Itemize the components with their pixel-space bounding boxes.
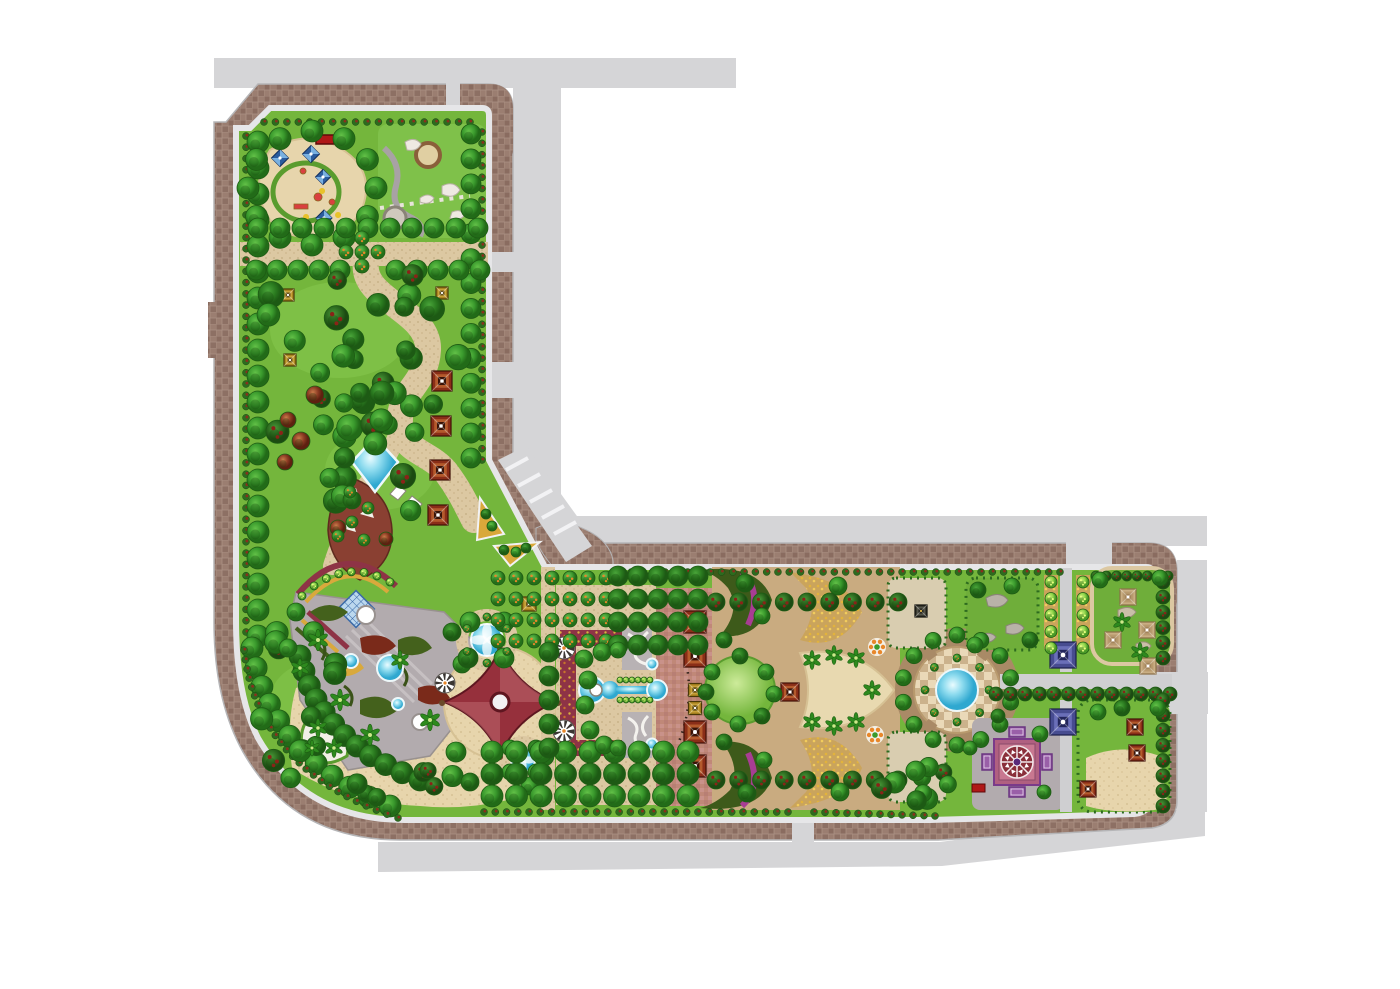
hedge-east-arm-bottom-tree (785, 809, 792, 816)
central-accent-trees-tree (831, 783, 849, 801)
hedge-east-arm-bottom2-tree (932, 813, 939, 820)
hedge-east-arm-bottom-tree (559, 809, 566, 816)
bl-lawn-grove-2-tree (442, 765, 463, 786)
parterre-inner-trees-tree (576, 696, 594, 714)
hedge-east-arm-bottom2-tree (877, 811, 884, 818)
bottom-grove-row2-tree (506, 763, 528, 785)
plaza-pond-small-2 (392, 698, 404, 710)
channel-shrub-row-top-tree (623, 677, 629, 683)
tree-column-left-tree (247, 573, 269, 595)
rotary-flower-shrubs-tree (976, 709, 984, 717)
orchard-grid-tree (563, 571, 577, 585)
hedge-left-tower-tree (243, 358, 250, 365)
park-plan-svg (0, 0, 1400, 989)
orchard-grid-tree (545, 592, 559, 606)
central-tree-row-top (707, 593, 907, 611)
hedge-east-arm-bottom2-tree (855, 810, 862, 817)
hedge-east-arm-bottom-tree (526, 809, 533, 816)
tower-lawn-grove-tree (390, 463, 415, 488)
hedge-east-arm-top-tree (910, 569, 917, 576)
plaza-edge-trees-tree (443, 623, 461, 641)
hedge-east-arm-top-tree (831, 569, 838, 576)
parterre-flank-trees-tree (539, 738, 559, 758)
hedge-east-arm-top-tree (853, 569, 860, 576)
bl-lawn-grove-tree (281, 768, 301, 788)
hedge-top-tower-tree (409, 119, 416, 126)
arc-hedge-bl-tree (373, 807, 380, 814)
tree-column-left-tree (247, 547, 269, 569)
hedge-east-arm-top-tree (842, 569, 849, 576)
olive-bushes-tree (370, 381, 394, 405)
row-below-playzones-tree (380, 218, 400, 238)
hedge-east-arm-top-tree (729, 569, 736, 576)
upper-pond-flower-shrubs-tree (463, 625, 471, 633)
orchard-grid-tree (527, 613, 541, 627)
tower-lawn-grove-tree (370, 409, 393, 432)
hedge-east-arm-bottom-tree (571, 809, 578, 816)
arc-hedge-bl-tree (272, 732, 279, 739)
gold-pavilions-gold (284, 354, 296, 366)
tower-lawn-grove-tree (311, 363, 330, 382)
hedge-left-tower-tree (243, 516, 250, 523)
arc-hedge-bl-tree (335, 788, 342, 795)
red-leaf-trees-tree (306, 386, 324, 404)
tree-column-right-tree (461, 398, 481, 418)
channel-shrub-row-top-tree (617, 677, 623, 683)
tower-lawn-grove-tree (395, 297, 414, 316)
red-leaf-trees-tree (280, 412, 296, 428)
tulip-flower-trees-tree (362, 502, 374, 514)
parterre-flank-trees-tree (539, 714, 559, 734)
oval-ring-trees-tree (698, 684, 714, 700)
flower-diamond-junction-tree (355, 245, 369, 259)
plaza-edge-trees-tree (279, 639, 297, 657)
orchard-grid-tree (491, 571, 505, 585)
right-garden-top-berries-tree (1142, 571, 1152, 581)
mandala-surround-trees-tree (963, 741, 977, 755)
hedge-top-tower-tree (272, 119, 279, 126)
row-below-playzones-tree (424, 218, 444, 238)
hedge-east-arm-top-tree (820, 569, 827, 576)
hedge-right-tower-tree (479, 321, 486, 328)
rotary-tree-ring-tree (949, 737, 965, 753)
right-edge-berries-top-tree (1156, 590, 1170, 604)
hedge-left-tower-tree (243, 414, 250, 421)
red-pavilions-tower-red (430, 460, 450, 480)
row-below-crosspath-l-tree (309, 260, 329, 280)
hedge-east-arm-bottom-tree (627, 809, 634, 816)
tower-lawn-grove-tree (332, 344, 355, 367)
bottom-grove-row3-tree (604, 785, 626, 807)
dark-tree-grid-tree (628, 612, 648, 632)
tree-column-left-tree (247, 417, 269, 439)
arc-hedge-bl-tree (326, 783, 333, 790)
tower-lawn-grove-tree (335, 394, 353, 412)
br-sand-blob (1086, 749, 1168, 811)
hedge-east-arm-top-tree (1023, 569, 1030, 576)
hedge-east-arm-bottom-tree (503, 809, 510, 816)
oval-ring-trees-tree (754, 708, 770, 724)
parterre-flank-trees-tree (539, 642, 559, 662)
rotary-tree-ring-tree (992, 648, 1008, 664)
tan-tent-pavilions-tan (1139, 622, 1155, 638)
lollipop-strip-a-tree (1045, 626, 1057, 638)
row-below-playzones-tree (468, 218, 488, 238)
channel-shrub-row-bot-tree (629, 697, 635, 703)
central-tree-row-bottom-tree (753, 771, 771, 789)
bottom-grove-row3-tree (506, 785, 528, 807)
tower-lawn-grove-tree (351, 383, 370, 402)
parterre-inner-trees-tree (610, 740, 626, 756)
central-tree-row-bottom-tree (798, 771, 816, 789)
orchard-grid-tree (545, 613, 559, 627)
east-bottom-grove-tree (907, 791, 926, 810)
arc-hedge-bl-tree (244, 666, 251, 673)
right-edge-berries-bottom-tree (1156, 738, 1170, 752)
flower-diamond-junction-tree (339, 245, 353, 259)
orchard-grid-tree (581, 571, 595, 585)
lollipop-strip-b-tree (1077, 609, 1089, 621)
hedge-right-tower-tree (479, 343, 486, 350)
hedge-left-tower-tree (243, 279, 250, 286)
ornate-pond-top (647, 659, 658, 670)
mandala-surround-trees-tree (1032, 726, 1048, 742)
central-tree-row-top-tree (707, 593, 725, 611)
arc-hedge-bl-tree (251, 692, 258, 699)
upper-pond-flower-shrubs-tree (503, 625, 511, 633)
flower-diamond-junction-tree (355, 231, 369, 245)
lollipop-strip-b-tree (1077, 642, 1089, 654)
flower-diamond-junction-tree (355, 259, 369, 273)
orchard-grid-tree (509, 571, 523, 585)
orchard-grid-tree (527, 571, 541, 585)
rotary-tree-ring-tree (925, 632, 941, 648)
hedge-east-arm-bottom2-tree (899, 811, 906, 818)
lollipop-strip-a-tree (1045, 593, 1057, 605)
channel-shrub-row-bot-tree (647, 697, 653, 703)
tree-column-right-tree (461, 174, 481, 194)
rotary-flower-shrubs-tree (976, 663, 984, 671)
corner-triangle-trees-tree (521, 543, 531, 553)
hedge-left-tower-tree (243, 538, 250, 545)
central-accent-trees-tree (738, 784, 756, 802)
hedge-east-arm-top-tree (718, 569, 725, 576)
median-flower-trees-tree (1047, 687, 1061, 701)
flower-view-pavilion (781, 683, 799, 701)
right-edge-berries-top-tree (1156, 636, 1170, 650)
tower-lawn-grove-tree (367, 293, 390, 316)
hedge-east-arm-bottom-tree (762, 809, 769, 816)
br-garden-trees-tree (1150, 700, 1166, 716)
fan-dot-trees-tree (386, 578, 394, 586)
tree-column-right-tree (461, 448, 481, 468)
tr-quadrant-trees-tree (970, 582, 986, 598)
hedge-east-arm-bottom-tree (773, 809, 780, 816)
right-edge-berries-top-tree (1156, 621, 1170, 635)
fan-dot-trees-tree (310, 582, 318, 590)
br-garden-trees-tree (1114, 700, 1130, 716)
bottom-grove-row1-tree (481, 741, 503, 763)
entrance-tower-east-2 (486, 362, 560, 398)
east-bottom-grove-tree (906, 761, 926, 781)
hedge-east-arm-bottom-tree (683, 809, 690, 816)
dark-tree-grid-tree (608, 612, 628, 632)
dark-tree-grid-tree (628, 589, 648, 609)
corner-triangle-trees-tree (487, 521, 497, 531)
bottom-grove-row3-tree (579, 785, 601, 807)
channel-shrub-row-top-tree (647, 677, 653, 683)
hedge-east-arm-bottom-tree (582, 809, 589, 816)
right-edge-berries-bottom-tree (1156, 799, 1170, 813)
arc-hedge-bl-tree (242, 656, 249, 663)
hedge-left-tower-tree (243, 437, 250, 444)
lollipop-strip-a-tree (1045, 642, 1057, 654)
bottom-grove-row2-tree (530, 763, 552, 785)
br-red-pavilions-red (1129, 745, 1145, 761)
tree-column-right-tree (461, 323, 481, 343)
arc-hedge-bl-tree (241, 647, 248, 654)
hedge-east-arm-bottom2-tree (888, 811, 895, 818)
hedge-east-arm-top-tree (978, 569, 985, 576)
row-below-crosspath-r (386, 260, 490, 280)
arc-hedge-bl-tree (246, 675, 253, 682)
fan-dot-trees-tree (335, 570, 343, 578)
median-flower-trees-tree (1033, 687, 1047, 701)
row-below-crosspath-r-tree (470, 260, 490, 280)
orchard-grid-tree (491, 613, 505, 627)
parterre-inner-trees-tree (581, 721, 599, 739)
orchard-grid-tree (509, 592, 523, 606)
black-pavilions-black (915, 605, 927, 617)
playground-tree-ring-tree (246, 149, 268, 171)
tree-column-right-tree (461, 373, 481, 393)
br-red-pavilions-red (1127, 719, 1143, 735)
tower-lawn-grove-tree (324, 306, 349, 331)
row-below-playzones-tree (248, 218, 268, 238)
hedge-east-arm-bottom-tree (649, 809, 656, 816)
hedge-top-tower-tree (398, 119, 405, 126)
dark-tree-grid-tree (688, 612, 708, 632)
bottom-grove-row1-tree (506, 741, 528, 763)
hedge-right-tower-tree (479, 445, 486, 452)
parterre-flank-trees (539, 642, 559, 758)
rotary-flower-shrubs-tree (921, 686, 929, 694)
channel-shrub-row-top-tree (635, 677, 641, 683)
hedge-left-tower-tree (243, 617, 250, 624)
upper-pond-flower-shrubs-tree (503, 648, 511, 656)
hedge-top-tower-tree (444, 119, 451, 126)
bottom-grove-row2-tree (653, 763, 675, 785)
red-leaf-trees-tree (277, 454, 293, 470)
hedge-east-arm-top-tree (774, 569, 781, 576)
tower-lawn-grove-tree (446, 344, 471, 369)
orchard-grid-tree (581, 613, 595, 627)
dark-tree-grid-tree (648, 589, 668, 609)
bl-lawn-grove-tree (323, 662, 346, 685)
bottom-grove-row3-tree (677, 785, 699, 807)
rotary-tree-ring-tree (1003, 670, 1019, 686)
tree-column-left-tree (247, 339, 269, 361)
rotary-flower-shrubs-tree (953, 718, 961, 726)
hedge-east-arm-bottom-tree (706, 809, 713, 816)
plaza-edge-trees-tree (287, 603, 305, 621)
hedge-east-arm-top-tree (1057, 569, 1064, 576)
entrance-east-arm-top (1066, 538, 1112, 568)
bottom-grove-row3-tree (628, 785, 650, 807)
rotary-pond (936, 669, 978, 711)
corner-triangle-trees-tree (511, 547, 521, 557)
br-garden-trees-tree (1090, 704, 1106, 720)
gold-pavilions-gold (689, 702, 702, 715)
dark-tree-grid-tree (688, 566, 708, 586)
central-tree-row-top-tree (730, 593, 748, 611)
canopy-surround-trees-tree (461, 773, 479, 791)
median-flower-trees-tree (1105, 687, 1119, 701)
hedge-left-tower-tree (243, 335, 250, 342)
tree-column-right-tree (461, 124, 481, 144)
dark-tree-grid-tree (688, 635, 708, 655)
upper-pond-flower-shrubs-tree (463, 648, 471, 656)
hedge-right-tower-tree (479, 389, 486, 396)
parterre-inner-trees-tree (593, 643, 611, 661)
lollipop-strip-b-tree (1077, 576, 1089, 588)
playground-tree-ring-tree (356, 149, 378, 171)
tan-tent-pavilions-tan (1120, 589, 1136, 605)
east-bottom-grove-tree (939, 776, 956, 793)
tan-tent-pavilions-tan (1140, 658, 1156, 674)
fan-dot-trees-tree (347, 568, 355, 576)
playground-tree-ring-tree (237, 177, 259, 199)
hedge-east-arm-top-tree (786, 569, 793, 576)
right-garden-trees-tree (1092, 572, 1108, 588)
hedge-east-arm-bottom2-tree (833, 809, 840, 816)
red-pavilions-axis-red (684, 721, 706, 743)
tower-lawn-grove-tree (320, 468, 339, 487)
tower-lawn-grove-tree (397, 341, 416, 360)
arc-hedge-bl-tree (344, 793, 351, 800)
parterre-flank-trees-tree (539, 690, 559, 710)
rotary-flower-shrubs-tree (930, 709, 938, 717)
right-edge-berries-bottom-tree (1156, 754, 1170, 768)
corner-triangle-trees-tree (499, 545, 509, 555)
oval-ring-trees-tree (730, 716, 746, 732)
dark-tree-grid-tree (648, 566, 668, 586)
tree-column-left-tree (247, 495, 269, 517)
tulip-flower-trees-tree (332, 530, 344, 542)
hedge-east-arm-top-tree (763, 569, 770, 576)
hedge-top-tower-tree (283, 119, 290, 126)
compass-circle-plaza (435, 673, 455, 693)
rotary-tree-ring-tree (895, 670, 911, 686)
rotary-tree-ring-tree (895, 694, 911, 710)
parterre-inner-trees-tree (575, 650, 593, 668)
fan-dot-trees-tree (322, 575, 330, 583)
hedge-left-tower-tree (243, 200, 250, 207)
tr-quadrant-trees-tree (1004, 578, 1020, 594)
arc-hedge-bl-tree (363, 802, 370, 809)
bl-lawn-grove-2-tree (420, 763, 436, 779)
dark-tree-grid-tree (668, 566, 688, 586)
bl-lawn-grove-tree (251, 708, 273, 730)
east-bottom-grove-tree (871, 778, 892, 799)
arc-hedge-bl-tree (353, 798, 360, 805)
dark-tree-grid-tree (608, 566, 628, 586)
orchard-grid-tree (563, 634, 577, 648)
hedge-east-arm-bottom-tree (481, 809, 488, 816)
arc-hedge-bl-tree (277, 739, 284, 746)
hedge-top-tower-tree (352, 119, 359, 126)
orchard-grid-tree (527, 634, 541, 648)
hedge-east-arm-bottom2-tree (844, 810, 851, 817)
hedge-east-arm-bottom-tree (751, 809, 758, 816)
fountain-plaza-1 (357, 606, 375, 624)
hedge-left-tower-tree (243, 257, 250, 264)
right-garden-top-berries-tree (1132, 571, 1142, 581)
tr-quadrant-trees-tree (1022, 632, 1038, 648)
hedge-right-tower-tree (479, 242, 486, 249)
hedge-east-arm-top-tree (921, 569, 928, 576)
hedge-east-arm-bottom-tree (593, 809, 600, 816)
upper-pond-flower-shrubs-tree (483, 613, 491, 621)
dark-tree-grid-tree (628, 566, 648, 586)
canopy-surround-trees-tree (446, 742, 466, 762)
hedge-right-tower-tree (479, 196, 486, 203)
dark-tree-grid-tree (688, 589, 708, 609)
hedge-left-tower-tree (243, 459, 250, 466)
hedge-top-tower-tree (295, 119, 302, 126)
tree-column-right-tree (461, 199, 481, 219)
right-edge-berries-bottom-tree (1156, 769, 1170, 783)
oval-ring-trees-tree (732, 648, 748, 664)
hedge-right-tower-tree (479, 366, 486, 373)
entrance-tower-east-1 (486, 252, 560, 272)
bottom-grove-row1-tree (677, 741, 699, 763)
rotary-flower-shrubs-tree (930, 663, 938, 671)
hedge-east-arm-top-tree (899, 569, 906, 576)
hedge-top-tower-tree (364, 119, 371, 126)
central-tree-row-top-tree (798, 593, 816, 611)
lollipop-strip-a-tree (1045, 609, 1057, 621)
arc-hedge-bl-tree (254, 701, 261, 708)
hedge-east-arm-top-tree (989, 569, 996, 576)
channel-shrub-row-bot-tree (641, 697, 647, 703)
arc-hedge-bl-tree (395, 815, 402, 822)
tree-column-right-tree (461, 298, 481, 318)
hedge-east-arm-bottom-tree (661, 809, 668, 816)
right-garden-top-berries-tree (1122, 571, 1132, 581)
bl-lawn-grove-2-tree (347, 774, 367, 794)
parterre-flank-trees-tree (539, 666, 559, 686)
playground-tree-ring-tree (301, 120, 323, 142)
upper-pond-flower-shrubs-tree (483, 659, 491, 667)
tower-lawn-grove-tree (257, 303, 280, 326)
arc-hedge-bl-tree (248, 684, 255, 691)
tulip-flower-trees-tree (358, 534, 370, 546)
tower-lawn-grove-tree (313, 415, 333, 435)
hedge-east-arm-top-tree (865, 569, 872, 576)
tower-lawn-grove-tree (405, 423, 424, 442)
rotary-tree-ring-tree (906, 716, 922, 732)
median-flower-trees-tree (1062, 687, 1076, 701)
right-edge-berries-bottom-tree (1156, 723, 1170, 737)
central-tree-row-top-tree (844, 593, 862, 611)
bottom-grove-row3-tree (555, 785, 577, 807)
median-flower-trees-tree (1134, 687, 1148, 701)
bl-lawn-grove-tree (262, 749, 284, 771)
hedge-east-arm-bottom2-tree (822, 809, 829, 816)
central-tree-row-top-tree (821, 593, 839, 611)
hedge-east-arm-bottom-tree (739, 809, 746, 816)
